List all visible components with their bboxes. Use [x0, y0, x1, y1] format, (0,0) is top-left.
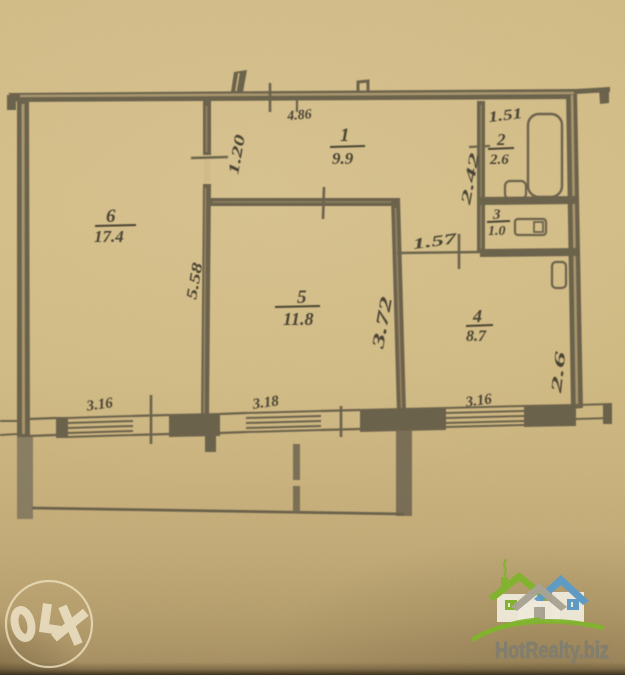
svg-text:5: 5	[297, 287, 307, 308]
svg-text:2: 2	[496, 130, 506, 149]
svg-text:1: 1	[340, 125, 350, 146]
svg-text:6: 6	[106, 206, 116, 227]
svg-text:HotRealty.biz: HotRealty.biz	[495, 637, 609, 663]
svg-text:2.6: 2.6	[489, 152, 509, 168]
svg-text:11.8: 11.8	[283, 309, 314, 329]
svg-text:8.7: 8.7	[466, 328, 487, 345]
svg-text:1.0: 1.0	[488, 224, 506, 239]
svg-text:4.86: 4.86	[286, 107, 313, 124]
svg-text:17.4: 17.4	[94, 227, 124, 246]
svg-text:9.9: 9.9	[332, 149, 354, 168]
svg-text:4: 4	[472, 306, 482, 326]
